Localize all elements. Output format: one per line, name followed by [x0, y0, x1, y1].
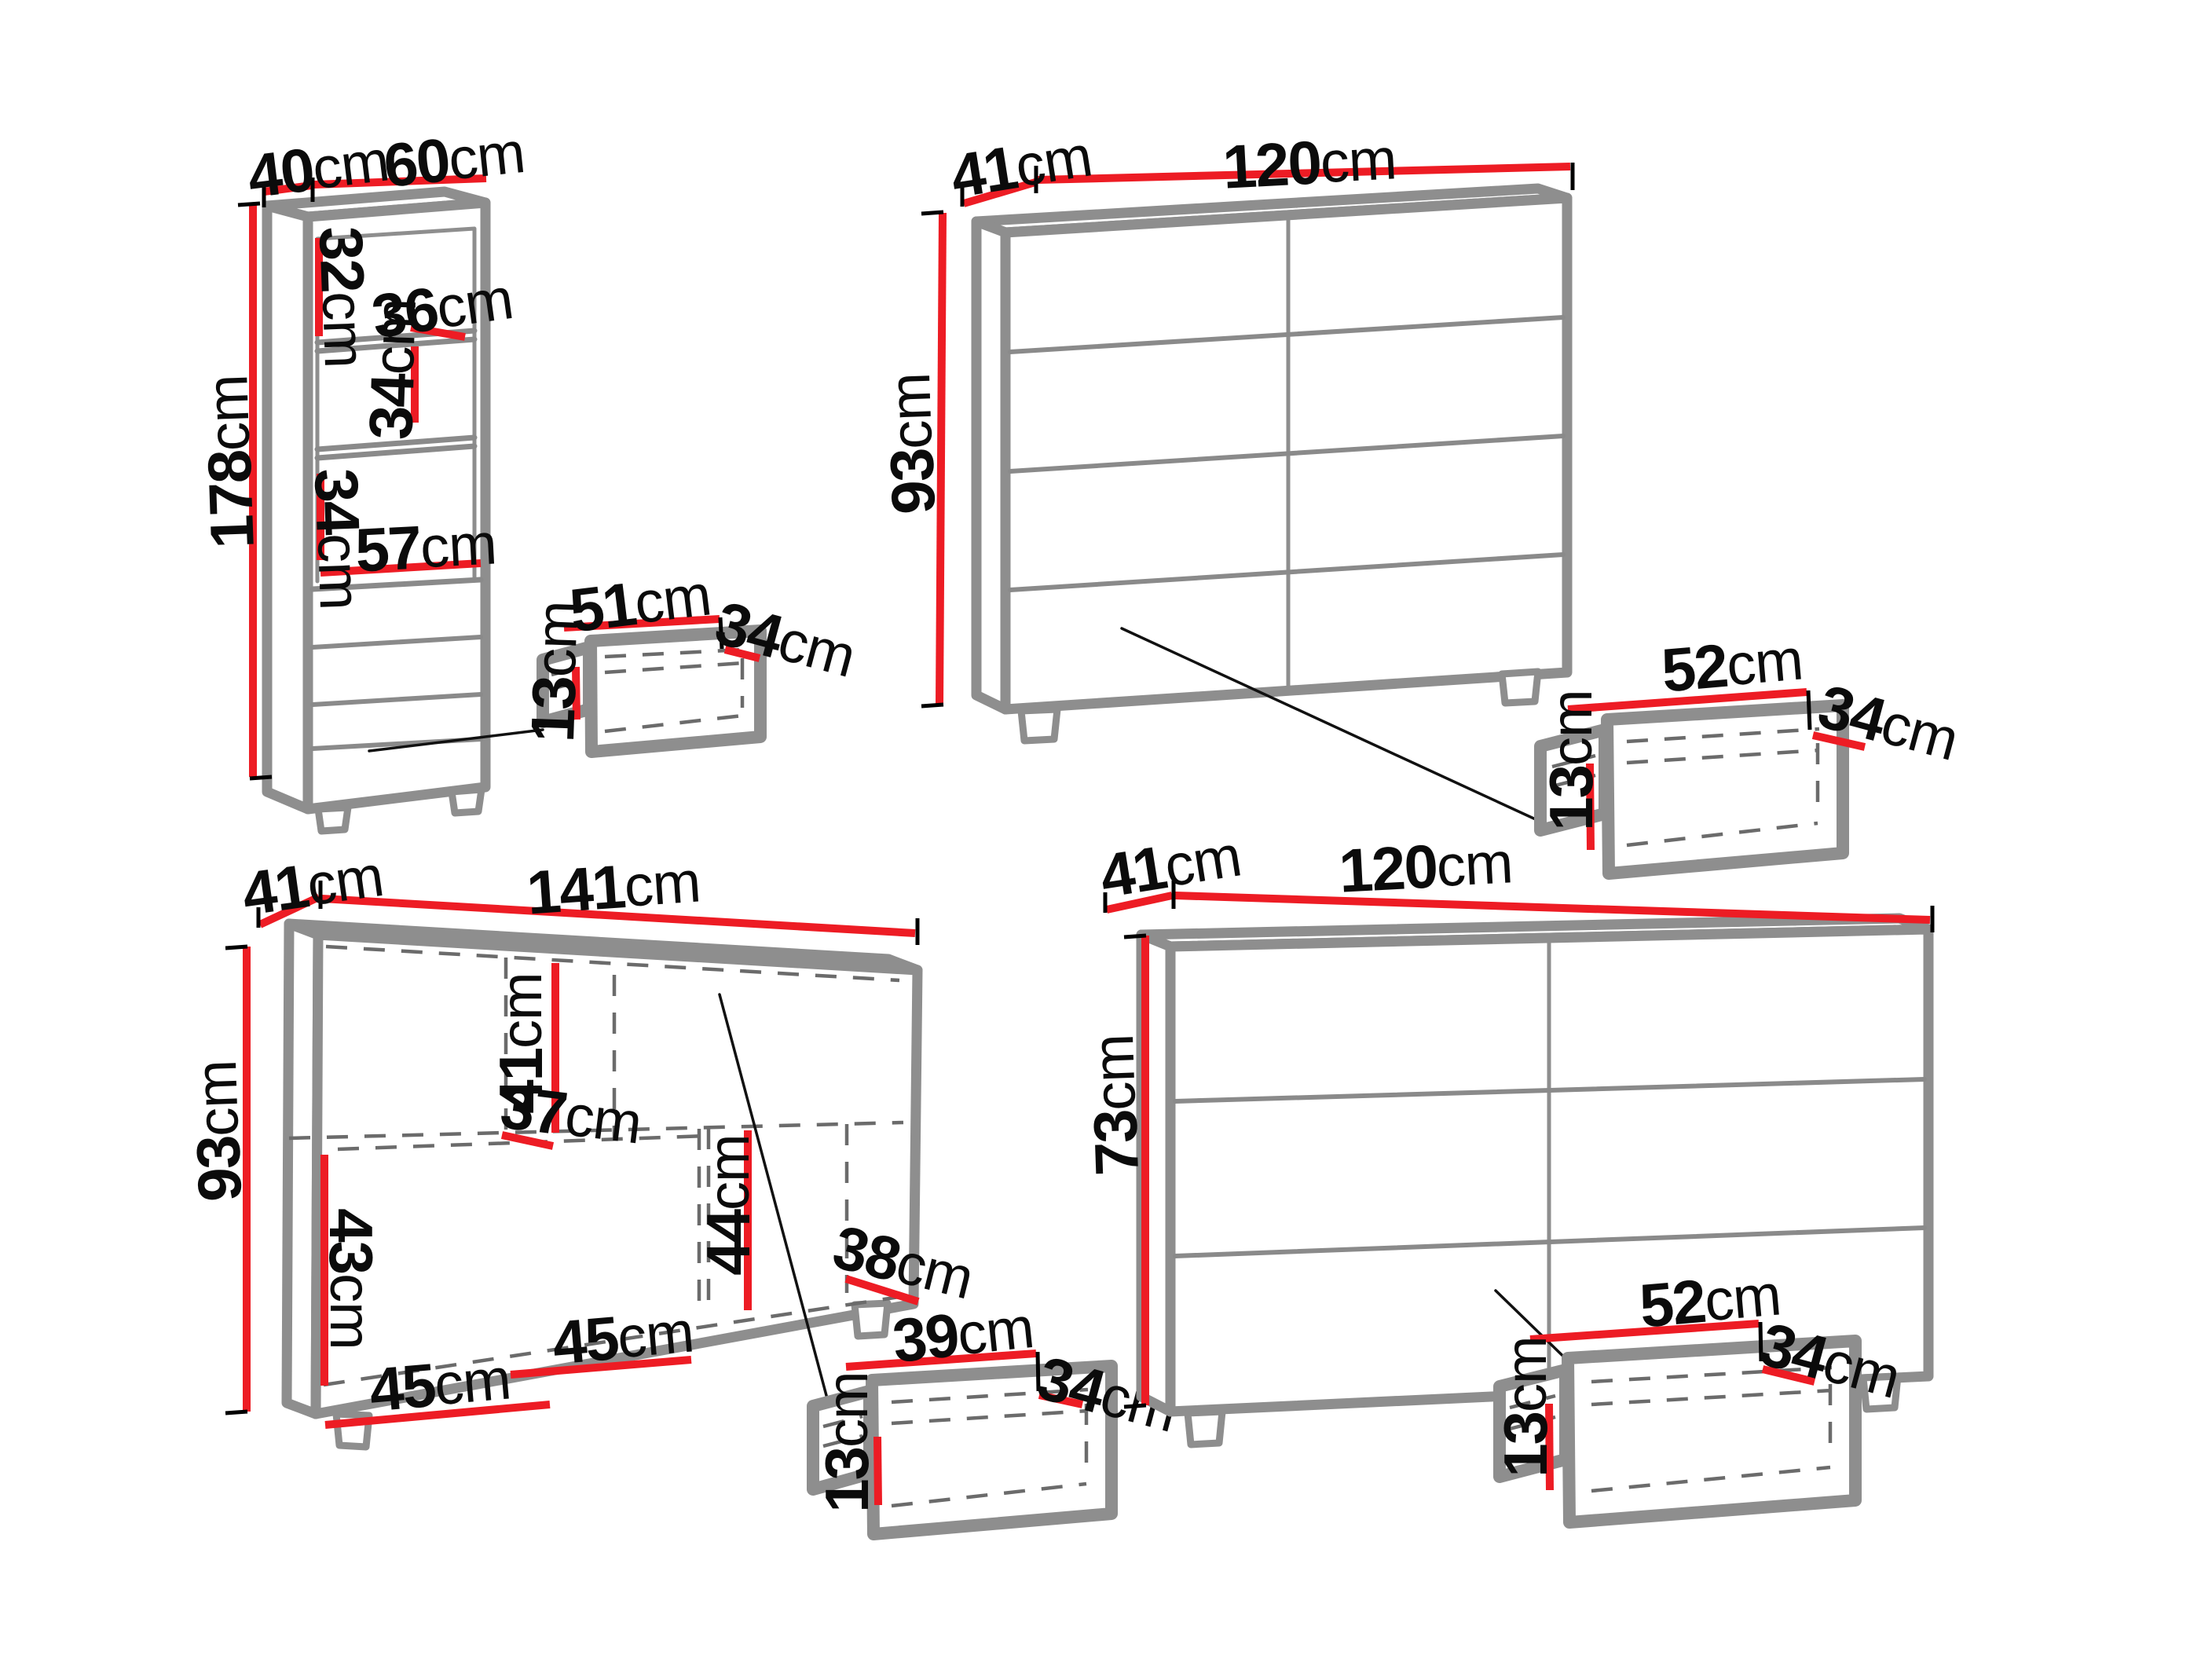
sideboard-inner43-label: 43cm	[317, 1208, 386, 1349]
drawer4-height-label: 13cm	[1491, 1336, 1560, 1477]
chest-bottom-height-label: 73cm	[1078, 1034, 1152, 1177]
drawer3-height-label: 13cm	[812, 1372, 881, 1512]
bookcase-foot-left	[318, 808, 348, 831]
chest-top-foot-right	[1502, 672, 1538, 703]
chest-top-depth-label: 41cm	[947, 121, 1097, 211]
bookcase-width-label: 60cm	[380, 117, 528, 200]
drawer2-height-label: 13cm	[1536, 690, 1606, 830]
drawer-detail-1: 51cm 34cm 13cm	[518, 559, 862, 752]
chest-top: 41cm 120cm 93cm	[874, 121, 1573, 825]
chest-top-foot-left	[1021, 709, 1057, 741]
chest-top-width-label: 120cm	[1221, 123, 1397, 201]
chest-top-body	[976, 189, 1567, 741]
sideboard-inner44-label: 44cm	[694, 1134, 763, 1275]
sideboard-foot-right	[855, 1303, 888, 1336]
bookcase-foot-right	[452, 789, 482, 813]
bookcase-compartment2-label: 34cm	[356, 298, 430, 441]
sideboard-depth-label: 41cm	[238, 840, 387, 928]
width-dimension-line	[1175, 895, 1930, 920]
drawer-detail-2: 52cm 34cm 13cm	[1536, 624, 1965, 873]
furniture-dimensions-diagram: 40cm 60cm 178cm 32cm 36cm 34cm 34cm 57cm…	[0, 0, 2212, 1659]
drawer1-height-label: 13cm	[518, 600, 591, 743]
sideboard: 41cm 141cm 93cm 41cm 37cm 43cm 45cm 45cm…	[181, 840, 980, 1447]
chest-bottom-foot-left	[1188, 1412, 1222, 1445]
bookcase: 40cm 60cm 178cm 32cm 36cm 34cm 34cm 57cm	[192, 117, 543, 831]
sideboard-width-label: 141cm	[525, 846, 702, 927]
chest-bottom-width-label: 120cm	[1337, 827, 1514, 905]
bookcase-height-label: 178cm	[192, 374, 267, 550]
bookcase-inner-width-label: 57cm	[353, 508, 498, 584]
chest-top-height-label: 93cm	[874, 372, 948, 515]
sideboard-height-label: 93cm	[181, 1060, 255, 1203]
drawer3-width-label: 39cm	[889, 1292, 1037, 1375]
sideboard-inner45b-label: 45cm	[550, 1296, 696, 1377]
